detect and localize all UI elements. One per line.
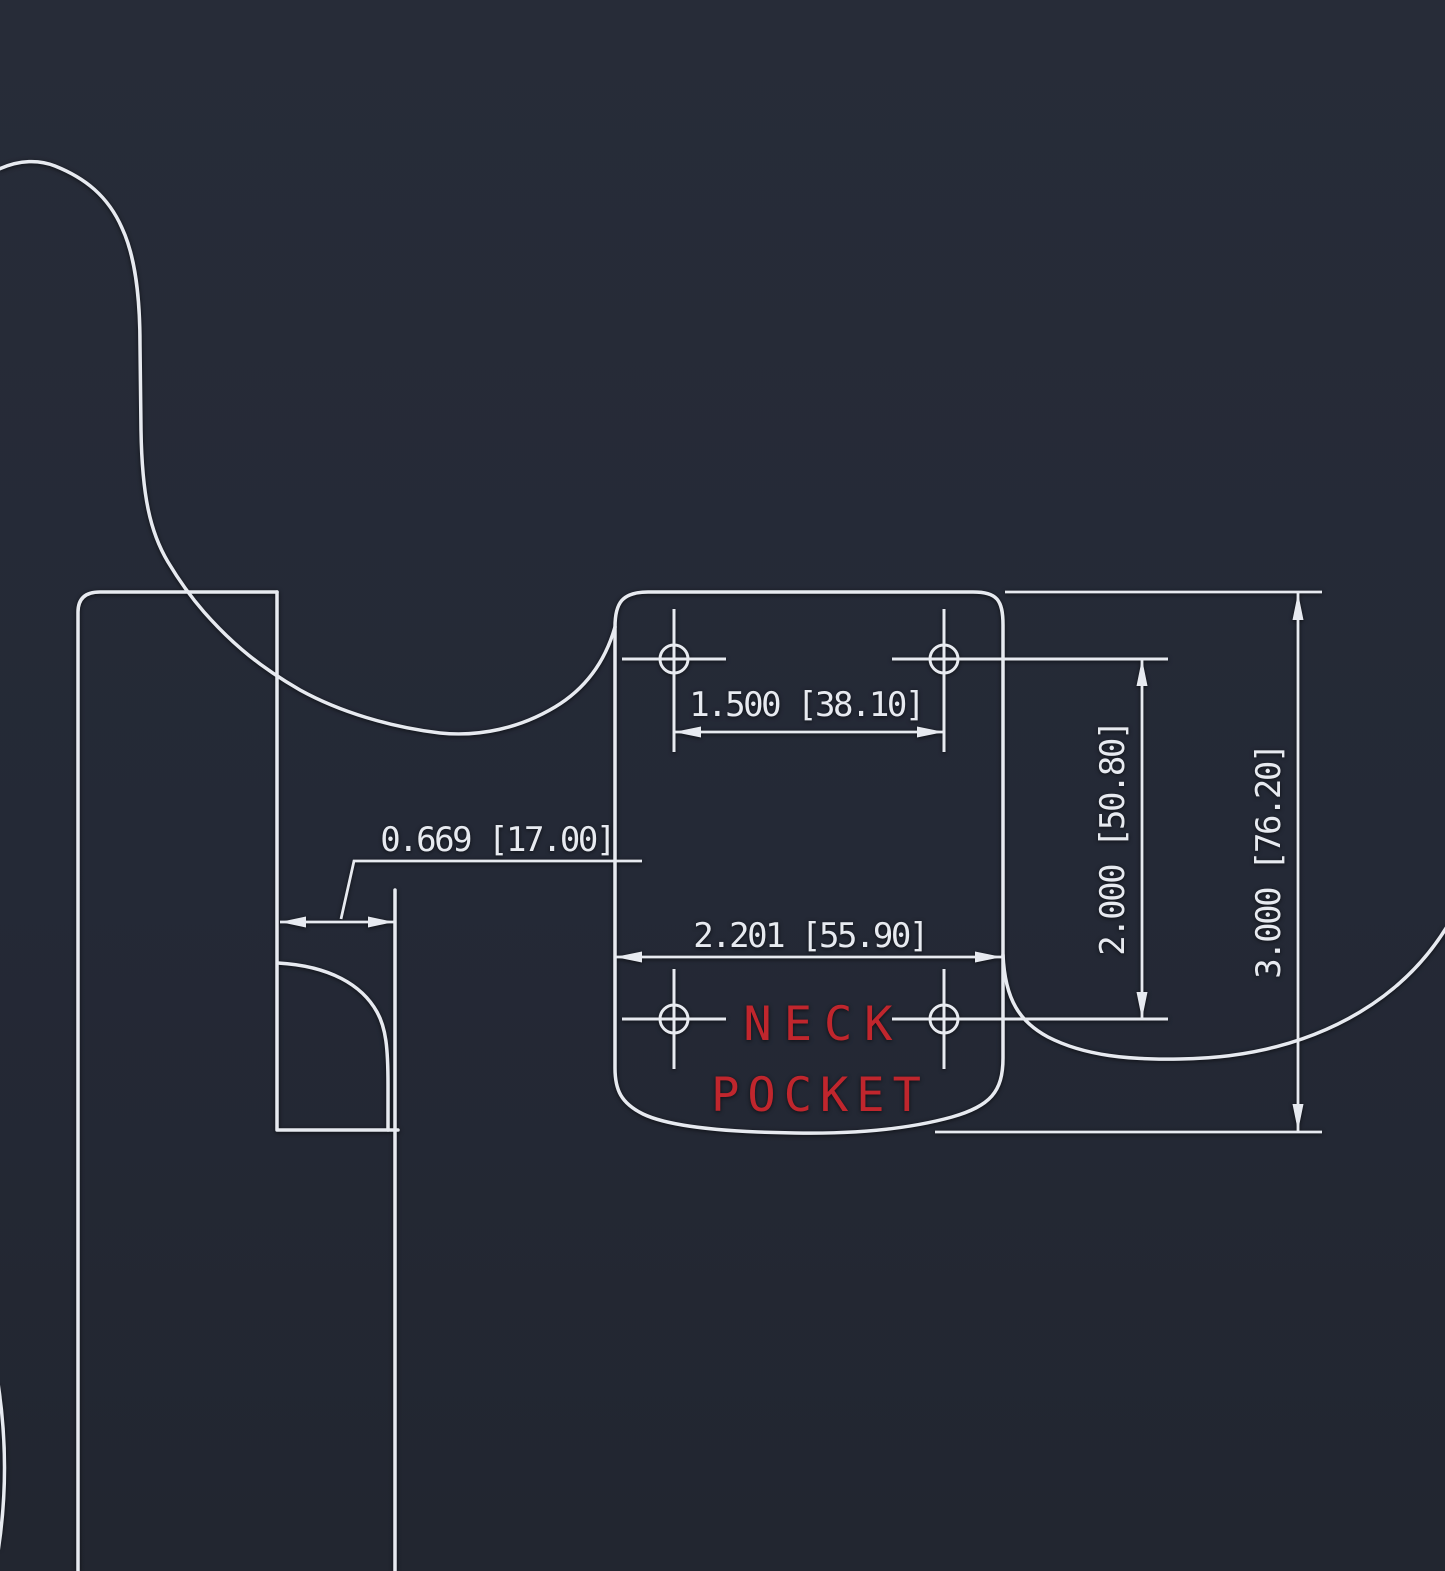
dim-pocket-width-label: 2.201 [55.90] (693, 916, 927, 956)
screw-hole-bottom-right-crosshair-icon (892, 969, 1168, 1069)
neck-pocket-label: NECK POCKET (711, 997, 929, 1123)
dim-hole-spacing-vertical-label: 2.000 [50.80] (1093, 722, 1133, 956)
arrowhead-right (917, 727, 944, 738)
dimension-heel-offset: 0.669 [17.00] (280, 820, 642, 928)
body-outline-right-curve (1003, 925, 1445, 1059)
screw-hole-bottom-left-crosshair-icon (622, 969, 726, 1069)
neck-pocket-drawing: 1.500 [38.10] 2.201 [55.90] 0.669 [17.00… (0, 0, 1445, 1571)
neck-pocket-label-line2: POCKET (711, 1068, 929, 1123)
arrowhead-down (1137, 992, 1148, 1019)
arrowhead-left (615, 952, 642, 963)
arrowhead-right (975, 952, 1002, 963)
dim-hole-spacing-horizontal-label: 1.500 [38.10] (689, 685, 923, 725)
leader-line (341, 861, 642, 919)
heel-outline-left (78, 592, 277, 1571)
arrowhead-right (368, 917, 394, 928)
dimension-hole-spacing-horizontal: 1.500 [38.10] (674, 685, 944, 738)
arrowhead-up (1293, 593, 1304, 620)
arrowhead-down (1293, 1104, 1304, 1131)
arrowhead-left (674, 727, 701, 738)
dimension-hole-spacing-vertical: 2.000 [50.80] (1093, 659, 1148, 1019)
dim-pocket-length-label: 3.000 [76.20] (1249, 745, 1289, 979)
heel-fillet-arc (278, 963, 388, 1130)
body-outline-lower-left-arc (0, 1377, 5, 1558)
dimension-pocket-width: 2.201 [55.90] (615, 916, 1002, 963)
blueprint-canvas: 1.500 [38.10] 2.201 [55.90] 0.669 [17.00… (0, 0, 1445, 1571)
screw-hole-top-left-crosshair-icon (622, 609, 726, 752)
body-outline-upper-left-curve (0, 162, 615, 734)
arrowhead-up (1137, 659, 1148, 686)
body-outlines (0, 162, 1445, 1571)
arrowhead-left (280, 917, 306, 928)
neck-pocket-label-line1: NECK (743, 997, 904, 1052)
dim-heel-offset-label: 0.669 [17.00] (380, 820, 614, 860)
